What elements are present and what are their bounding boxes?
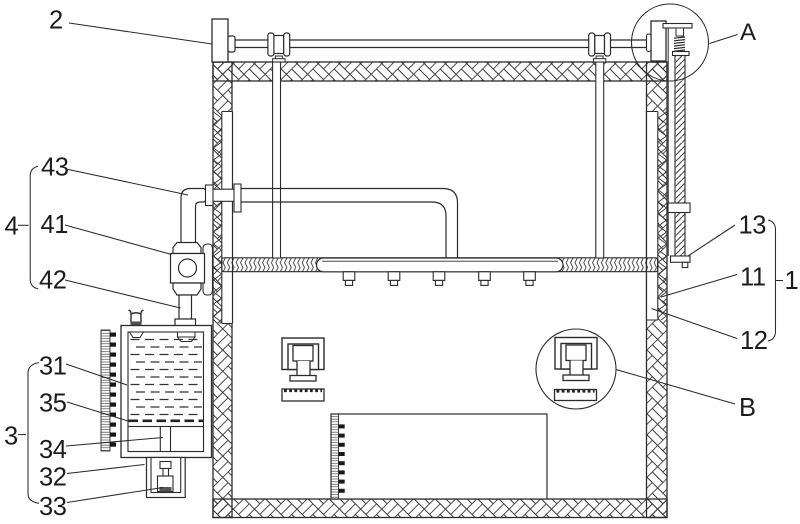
- svg-text:42: 42: [39, 267, 67, 295]
- svg-text:A: A: [740, 19, 756, 46]
- svg-text:33: 33: [39, 493, 67, 521]
- svg-text:12: 12: [740, 327, 768, 355]
- svg-text:32: 32: [39, 464, 67, 492]
- svg-text:41: 41: [41, 211, 69, 239]
- svg-text:11: 11: [740, 264, 766, 292]
- svg-text:31: 31: [39, 353, 67, 381]
- svg-text:1: 1: [785, 267, 799, 295]
- svg-text:2: 2: [49, 7, 63, 35]
- svg-text:3: 3: [4, 423, 18, 451]
- svg-text:34: 34: [39, 436, 67, 464]
- svg-text:13: 13: [739, 212, 767, 240]
- svg-text:4: 4: [5, 213, 19, 241]
- svg-text:B: B: [739, 394, 756, 422]
- svg-text:35: 35: [39, 390, 67, 418]
- svg-text:43: 43: [41, 154, 69, 182]
